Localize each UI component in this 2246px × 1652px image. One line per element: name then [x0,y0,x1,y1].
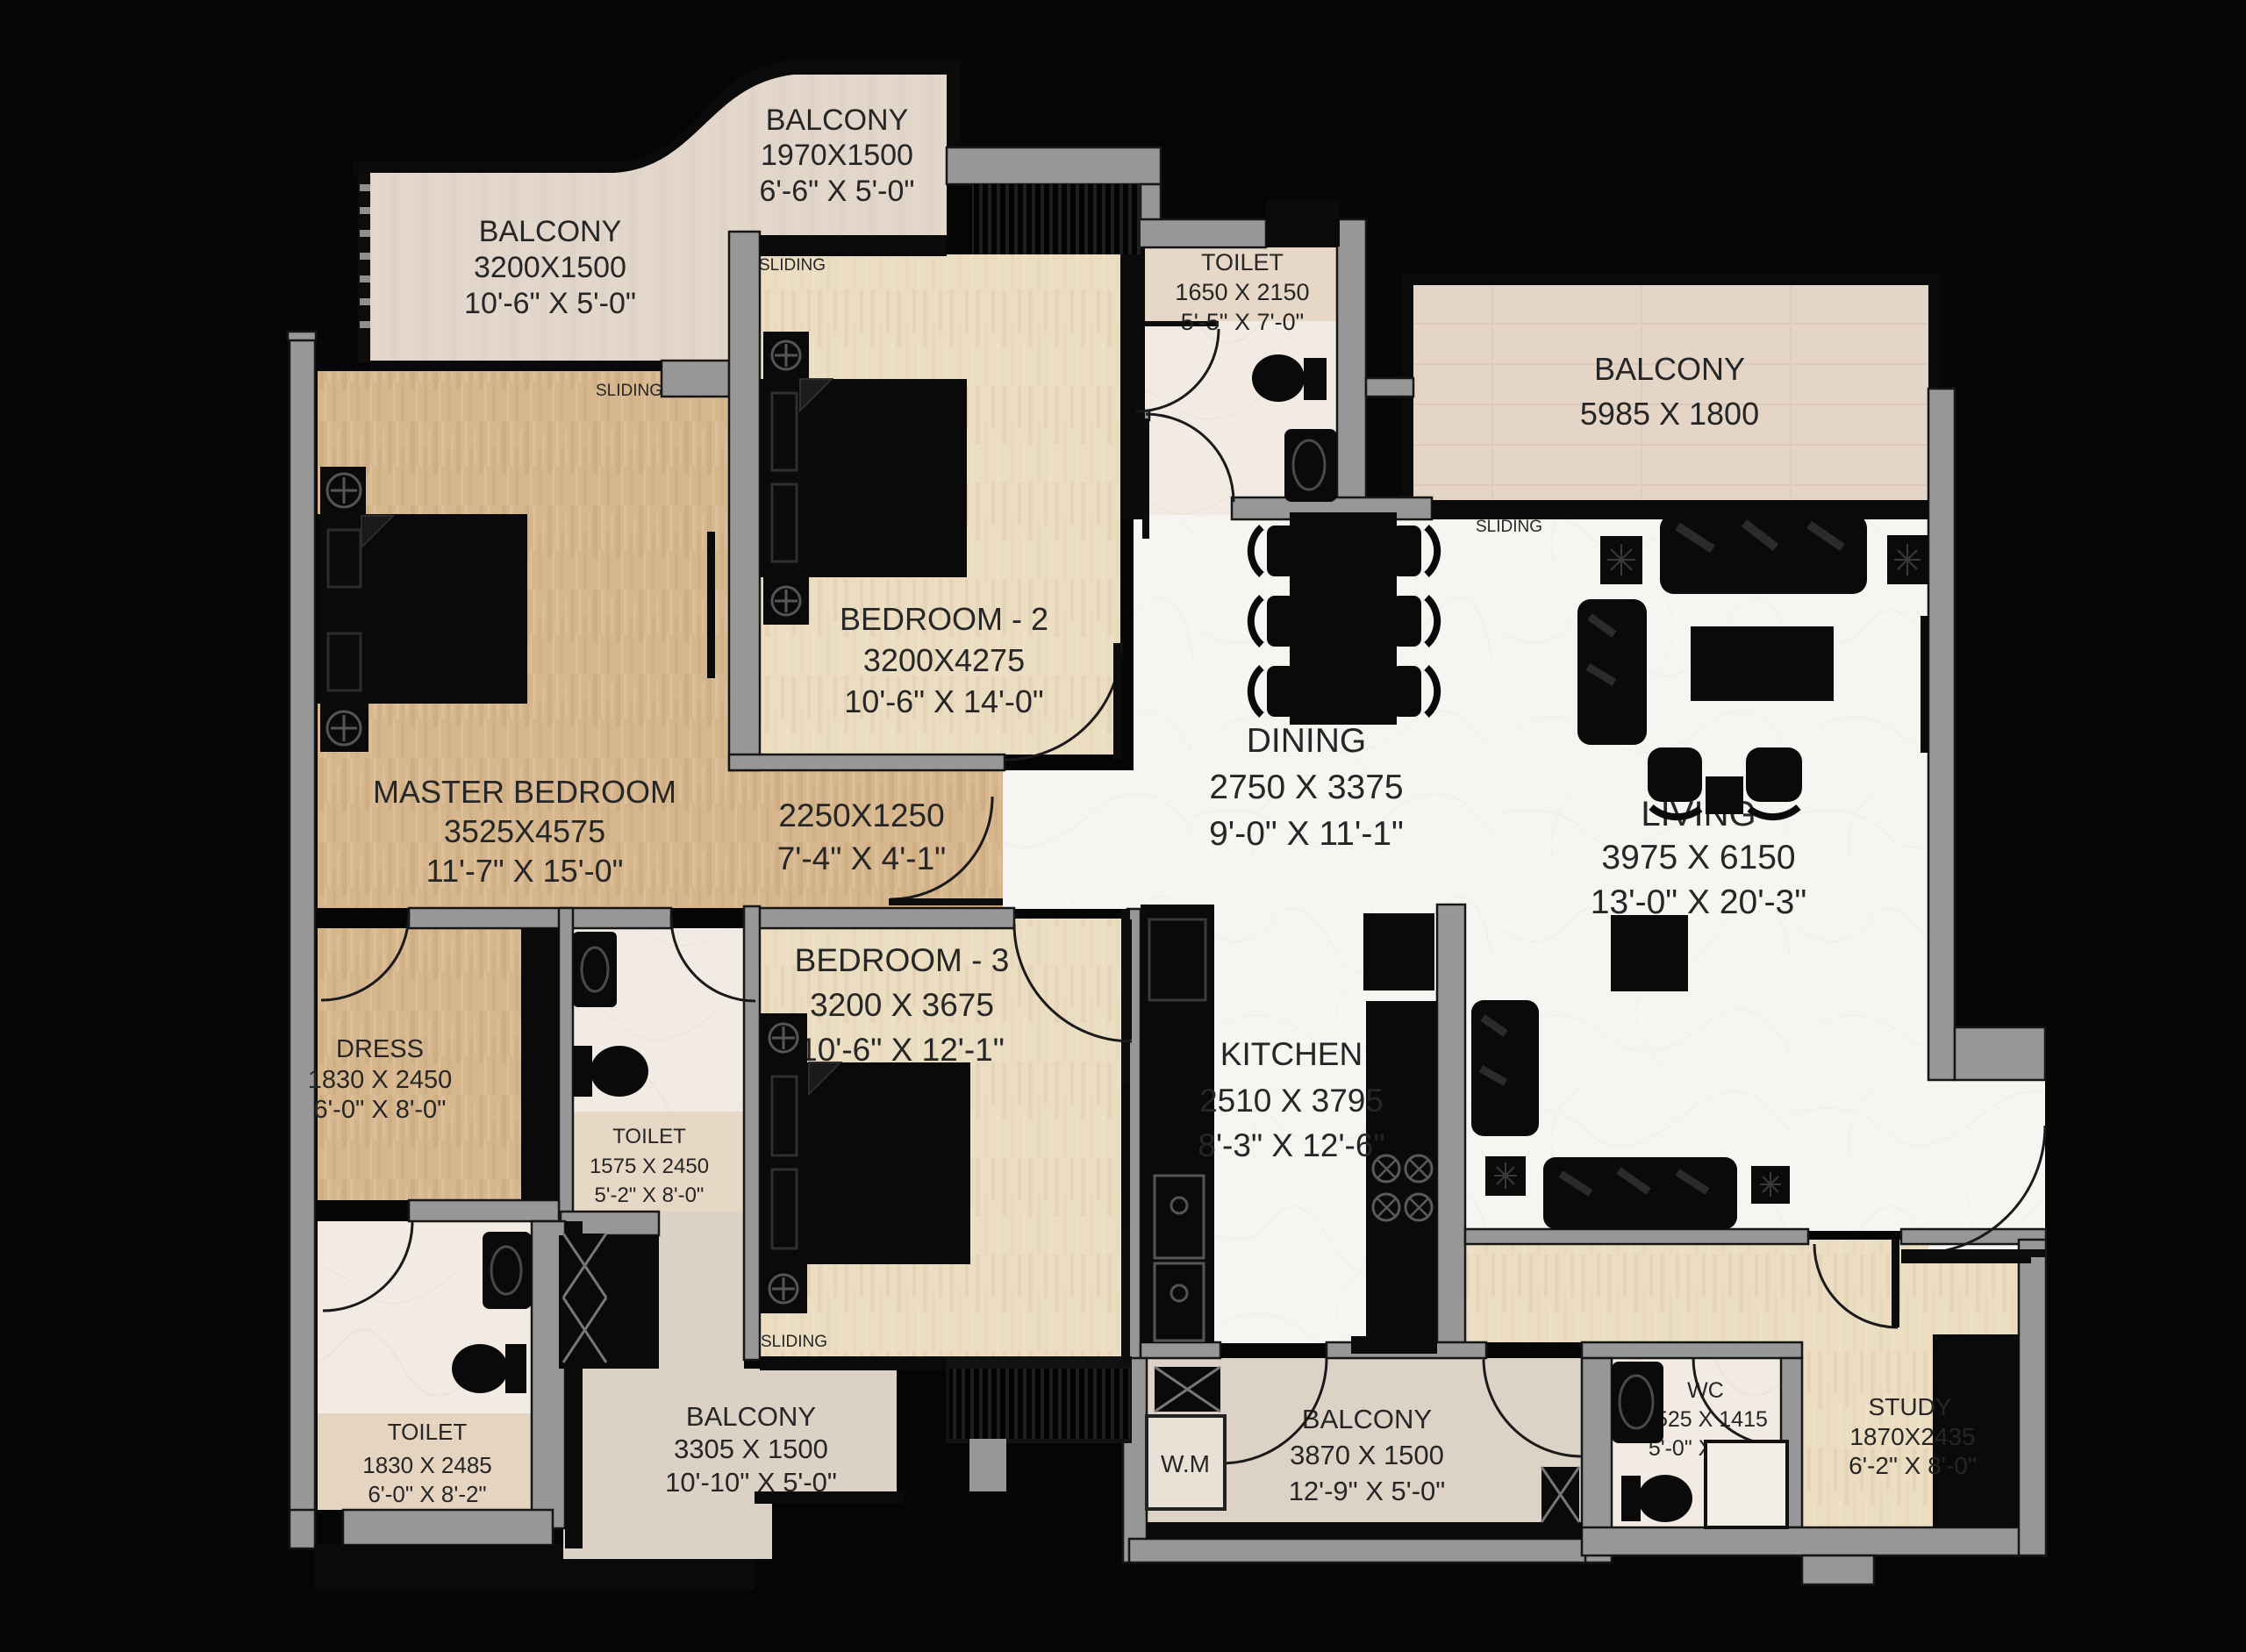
svg-text:1830 X 2450: 1830 X 2450 [308,1066,452,1094]
svg-text:10'-10" X 5'-0": 10'-10" X 5'-0" [665,1467,837,1498]
svg-text:6'-6" X 5'-0": 6'-6" X 5'-0" [760,175,915,208]
svg-text:BEDROOM - 3: BEDROOM - 3 [795,942,1010,978]
svg-text:BALCONY: BALCONY [766,104,909,137]
svg-text:SLIDING: SLIDING [761,1333,827,1351]
svg-text:6'-2" X 8'-0": 6'-2" X 8'-0" [1849,1452,1977,1479]
svg-text:1970X1500: 1970X1500 [761,139,913,172]
svg-text:3305 X 1500: 3305 X 1500 [674,1434,828,1464]
svg-text:6'-0" X 8'-0": 6'-0" X 8'-0" [314,1096,447,1124]
svg-text:SLIDING: SLIDING [759,256,826,275]
svg-text:5'-5" X 7'-0": 5'-5" X 7'-0" [1181,309,1305,335]
svg-text:KITCHEN: KITCHEN [1220,1036,1363,1072]
svg-text:BALCONY: BALCONY [1594,351,1745,387]
svg-text:2250X1250: 2250X1250 [778,797,944,833]
svg-text:5985 X 1800: 5985 X 1800 [1580,396,1759,432]
svg-text:3200X1500: 3200X1500 [474,251,626,284]
svg-text:W.M: W.M [1161,1450,1210,1477]
svg-text:1575 X 2450: 1575 X 2450 [590,1155,709,1178]
svg-text:2510 X 3795: 2510 X 3795 [1199,1083,1384,1119]
svg-text:BEDROOM - 2: BEDROOM - 2 [840,601,1048,637]
svg-text:5'-2" X 8'-0": 5'-2" X 8'-0" [595,1184,705,1207]
svg-text:11'-7" X 15'-0": 11'-7" X 15'-0" [426,853,624,889]
svg-text:10'-6" X 14'-0": 10'-6" X 14'-0" [844,683,1043,719]
svg-text:3975 X 6150: 3975 X 6150 [1601,839,1795,876]
svg-text:BALCONY: BALCONY [686,1401,816,1432]
svg-text:TOILET: TOILET [388,1419,468,1445]
svg-text:3525X4575: 3525X4575 [444,813,605,849]
svg-text:1650 X 2150: 1650 X 2150 [1175,279,1309,305]
svg-text:SLIDING: SLIDING [1476,518,1542,536]
svg-text:3200 X 3675: 3200 X 3675 [810,987,994,1023]
svg-text:1830 X 2485: 1830 X 2485 [362,1452,491,1478]
svg-text:WC: WC [1687,1378,1724,1403]
svg-text:DINING: DINING [1247,722,1367,760]
svg-text:SLIDING: SLIDING [596,382,662,400]
svg-text:9'-0" X 11'-1": 9'-0" X 11'-1" [1209,815,1404,853]
svg-text:BALCONY: BALCONY [1302,1404,1432,1434]
svg-text:7'-4" X 4'-1": 7'-4" X 4'-1" [777,840,947,876]
svg-text:STUDY: STUDY [1869,1393,1952,1420]
svg-text:MASTER BEDROOM: MASTER BEDROOM [373,774,676,810]
svg-text:1870X2435: 1870X2435 [1849,1423,1975,1450]
svg-text:DRESS: DRESS [336,1035,424,1063]
svg-text:10'-6" X 5'-0": 10'-6" X 5'-0" [464,287,636,320]
svg-text:TOILET: TOILET [612,1125,686,1148]
svg-text:8'-3" X 12'-6": 8'-3" X 12'-6" [1198,1127,1384,1163]
svg-text:12'-9" X 5'-0": 12'-9" X 5'-0" [1289,1476,1446,1506]
svg-text:TOILET: TOILET [1201,249,1284,275]
svg-text:3870 X 1500: 3870 X 1500 [1290,1440,1444,1470]
svg-text:3200X4275: 3200X4275 [863,642,1025,678]
svg-text:6'-0" X 8'-2": 6'-0" X 8'-2" [368,1481,486,1507]
svg-text:2750 X 3375: 2750 X 3375 [1209,769,1403,806]
svg-text:BALCONY: BALCONY [479,215,622,248]
